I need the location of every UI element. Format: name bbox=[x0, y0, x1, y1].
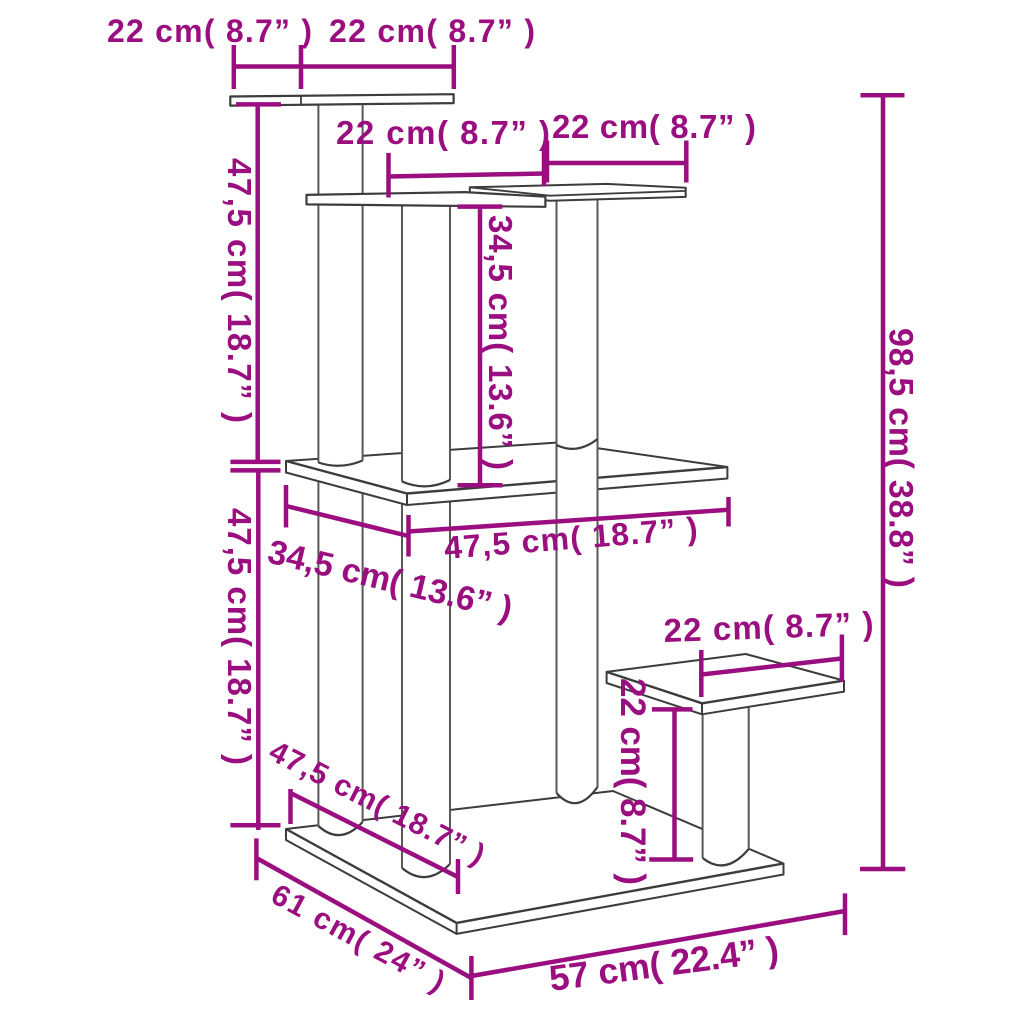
svg-text:22 cm( 8.7” ): 22 cm( 8.7” ) bbox=[107, 13, 312, 49]
svg-text:22 cm( 8.7” ): 22 cm( 8.7” ) bbox=[663, 605, 874, 649]
svg-text:47,5 cm( 18.7” ): 47,5 cm( 18.7” ) bbox=[221, 508, 258, 765]
svg-text:57 cm( 22.4” ): 57 cm( 22.4” ) bbox=[547, 928, 781, 999]
svg-text:22 cm( 8.7” ): 22 cm( 8.7” ) bbox=[613, 678, 652, 885]
svg-text:22 cm( 8.7” ): 22 cm( 8.7” ) bbox=[336, 114, 550, 151]
svg-text:98,5 cm( 38.8” ): 98,5 cm( 38.8” ) bbox=[882, 328, 920, 588]
svg-text:47,5 cm( 18.7” ): 47,5 cm( 18.7” ) bbox=[221, 158, 258, 423]
svg-text:22 cm( 8.7” ): 22 cm( 8.7” ) bbox=[552, 108, 756, 145]
svg-text:22 cm( 8.7” ): 22 cm( 8.7” ) bbox=[329, 13, 535, 49]
svg-text:34,5 cm( 13.6” ): 34,5 cm( 13.6” ) bbox=[482, 215, 519, 470]
